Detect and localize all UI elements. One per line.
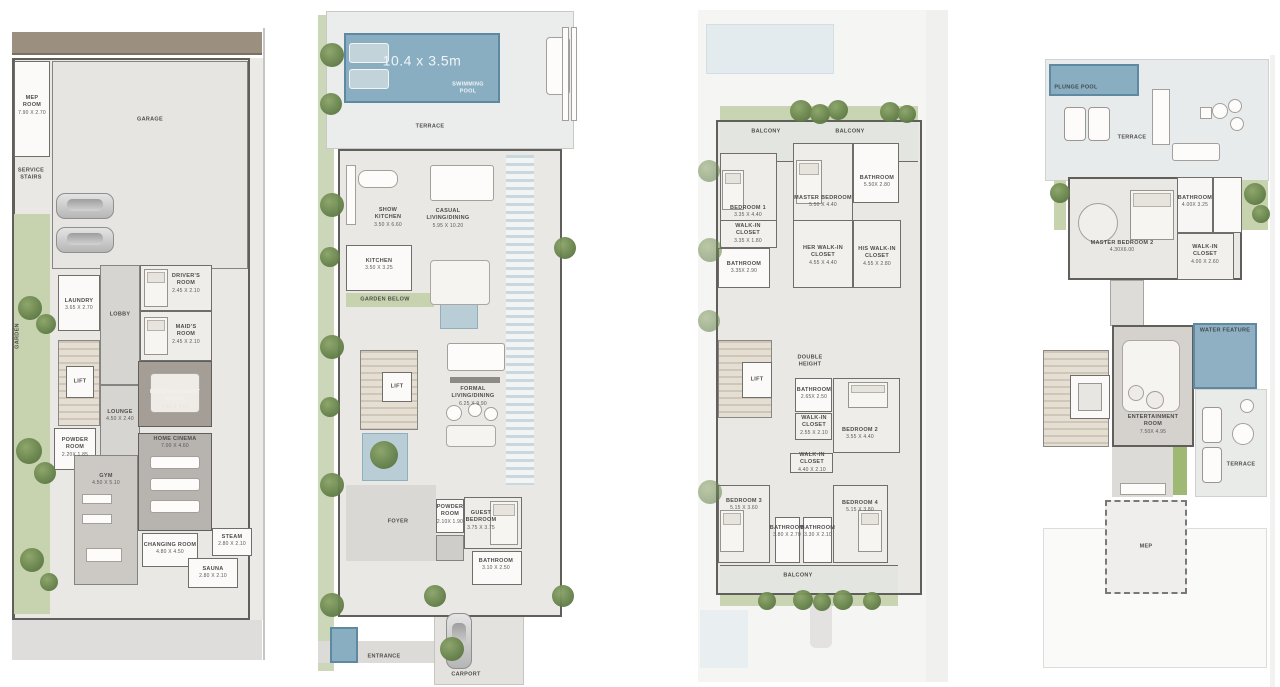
tree-icon — [828, 100, 848, 120]
tree-icon — [320, 247, 340, 267]
tree-icon — [424, 585, 446, 607]
room-laundry — [58, 275, 100, 331]
water-feature — [1193, 323, 1257, 389]
tree-icon — [698, 480, 722, 504]
plan-basement: MEP ROOM7.90 X 2.70 GARAGE SERVICE STAIR… — [10, 28, 270, 662]
armchair-icon — [446, 405, 462, 421]
tree-icon — [40, 573, 58, 591]
bench-icon — [1120, 483, 1166, 495]
room-bathroom4 — [803, 517, 832, 563]
pouf-icon — [1128, 385, 1144, 401]
tree-icon — [758, 592, 776, 610]
sofa-icon — [430, 260, 490, 305]
balcony-bottom-strip — [720, 565, 898, 593]
room-kitchen — [346, 245, 412, 291]
tree-icon — [370, 441, 398, 469]
car-icon — [56, 227, 114, 253]
room-bathroom3 — [775, 517, 800, 563]
lift-car — [1078, 383, 1102, 411]
tree-icon — [698, 310, 720, 332]
armchair-icon — [484, 407, 498, 421]
road-strip — [12, 32, 262, 55]
bed-icon — [144, 269, 168, 307]
room-bathroom — [472, 551, 522, 585]
bed-icon — [720, 510, 744, 552]
boundary-line — [263, 28, 265, 660]
sofa-icon — [446, 425, 496, 447]
tree-icon — [698, 160, 720, 182]
tree-icon — [320, 335, 344, 359]
tree-icon — [36, 314, 56, 334]
plunge-pool — [1049, 64, 1139, 96]
armchair-icon — [1212, 103, 1228, 119]
garden-below-strip — [346, 293, 434, 307]
bed-icon — [796, 160, 822, 204]
round-sofa-icon — [1078, 203, 1118, 243]
console-icon — [450, 377, 500, 383]
shelving-icon — [1152, 89, 1170, 145]
room-lounge — [100, 385, 140, 459]
room-his-walkin — [853, 220, 901, 288]
room-toilet — [1213, 177, 1242, 233]
bed-icon — [144, 317, 168, 355]
tree-icon — [320, 473, 344, 497]
room-walkin1 — [720, 220, 777, 248]
side-strip — [1270, 55, 1275, 687]
sofa-icon — [150, 373, 200, 413]
entry-pool — [330, 627, 358, 663]
gym-equipment-icon — [82, 514, 112, 524]
tree-icon — [833, 590, 853, 610]
bottom-paving — [12, 620, 262, 660]
round-table-icon — [1232, 423, 1254, 445]
tree-icon — [1244, 183, 1266, 205]
pouf-icon — [1146, 391, 1164, 409]
room-lobby — [100, 265, 140, 385]
tree-icon — [793, 590, 813, 610]
room-steam — [212, 528, 252, 556]
lounger-icon — [1202, 407, 1222, 443]
gym-equipment-icon — [86, 548, 122, 562]
bed-icon — [858, 510, 882, 552]
room-her-walkin — [793, 220, 853, 288]
armchair-icon — [1240, 399, 1254, 413]
cinema-seats-icon — [150, 456, 200, 469]
lounger-icon — [349, 69, 389, 89]
corridor — [1110, 280, 1144, 326]
room-walkin — [1177, 233, 1234, 280]
foyer-area — [346, 485, 436, 561]
hedge-strip — [1173, 447, 1187, 495]
tree-icon — [1050, 183, 1070, 203]
tree-icon — [440, 637, 464, 661]
lounger-icon — [1202, 447, 1222, 483]
tree-icon — [320, 93, 342, 115]
tree-icon — [790, 100, 812, 122]
formal-dining-table-icon — [447, 343, 505, 371]
bed-icon — [722, 170, 744, 210]
armchair-icon — [1230, 117, 1244, 131]
lounger-icon — [1088, 107, 1110, 141]
tree-icon — [813, 593, 831, 611]
room-bathroom1 — [718, 248, 770, 288]
tree-icon — [34, 462, 56, 484]
bed-icon — [490, 501, 518, 545]
armchair-icon — [468, 403, 482, 417]
plan-ground: 10.4 x 3.5m SWIMMING POOL TERRACE SHOW K… — [318, 5, 582, 685]
room-walkin2 — [795, 413, 832, 440]
kitchen-island-icon — [358, 170, 398, 188]
car-icon — [56, 193, 114, 219]
armchair-icon — [1228, 99, 1242, 113]
plan-second: PLUNGE POOL TERRACE MASTER BEDROOM 24.30… — [1040, 55, 1277, 687]
planter-icon — [562, 27, 569, 121]
tree-icon — [320, 193, 344, 217]
bed-icon — [1130, 190, 1174, 240]
tree-icon — [810, 104, 830, 124]
tree-icon — [320, 397, 340, 417]
pool-below-outline — [706, 24, 834, 74]
tree-icon — [320, 43, 344, 67]
tree-icon — [16, 438, 42, 464]
room-mep — [14, 61, 50, 157]
lift — [742, 362, 772, 398]
planter-icon — [571, 27, 577, 121]
tree-icon — [552, 585, 574, 607]
tree-icon — [320, 593, 344, 617]
tree-icon — [20, 548, 44, 572]
room-bathroom2 — [795, 378, 832, 412]
gym-equipment-icon — [82, 494, 112, 504]
room-powder — [436, 499, 464, 533]
lift — [66, 366, 94, 398]
pool-below-outline — [700, 610, 748, 668]
slatted-bridge — [506, 155, 534, 485]
tree-icon — [554, 237, 576, 259]
floor-plan-sheet: { "document": { "type": "villa-floor-pla… — [0, 0, 1280, 687]
cinema-seats-icon — [150, 500, 200, 513]
counter-icon — [346, 165, 356, 225]
side-strip — [926, 10, 948, 682]
tree-icon — [898, 105, 916, 123]
tree-icon — [1252, 205, 1270, 223]
lift — [382, 372, 412, 402]
tree-icon — [863, 592, 881, 610]
plan-first: BALCONY BALCONY BEDROOM 13.35 X 4.40 MAS… — [698, 10, 948, 682]
vestibule — [436, 535, 464, 561]
bed-icon — [848, 382, 888, 408]
room-sauna — [188, 558, 238, 588]
room-walkin3 — [790, 453, 833, 473]
tree-icon — [698, 238, 722, 262]
tree-icon — [880, 102, 900, 122]
room-mep — [1105, 500, 1187, 594]
lounger-icon — [349, 43, 389, 63]
room-master-bathroom — [853, 143, 899, 203]
cinema-seats-icon — [150, 478, 200, 491]
dining-table-icon — [1172, 143, 1220, 161]
lounger-icon — [1064, 107, 1086, 141]
room-bathroom — [1177, 177, 1213, 233]
side-table-icon — [1200, 107, 1212, 119]
dining-table-icon — [430, 165, 494, 201]
